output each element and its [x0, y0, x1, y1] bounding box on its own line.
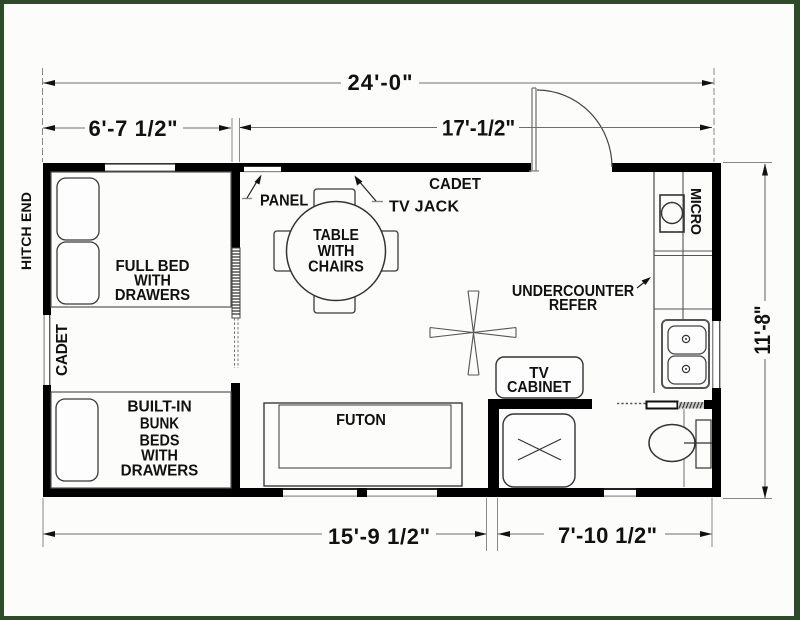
svg-text:HITCH END: HITCH END [18, 192, 34, 270]
svg-text:PANEL: PANEL [260, 192, 308, 210]
svg-text:15'-9 1/2": 15'-9 1/2" [328, 524, 430, 549]
svg-text:DRAWERS: DRAWERS [115, 286, 190, 304]
svg-text:REFER: REFER [549, 296, 597, 314]
svg-text:24'-0": 24'-0" [348, 70, 413, 95]
svg-text:6'-7 1/2": 6'-7 1/2" [89, 116, 178, 141]
svg-text:CHAIRS: CHAIRS [308, 258, 364, 276]
svg-text:TV JACK: TV JACK [389, 199, 459, 216]
svg-text:BUNK: BUNK [140, 416, 179, 433]
svg-text:CADET: CADET [54, 323, 71, 376]
svg-text:DRAWERS: DRAWERS [121, 462, 199, 479]
svg-text:CABINET: CABINET [507, 378, 572, 396]
svg-text:BUILT-IN: BUILT-IN [127, 398, 191, 415]
svg-text:7'-10 1/2": 7'-10 1/2" [558, 523, 657, 548]
svg-text:CADET: CADET [429, 176, 481, 194]
svg-text:17'-1/2": 17'-1/2" [442, 116, 515, 141]
svg-text:FUTON: FUTON [336, 411, 386, 429]
svg-text:11'-8": 11'-8" [752, 305, 776, 354]
svg-text:MICRO: MICRO [687, 188, 703, 235]
